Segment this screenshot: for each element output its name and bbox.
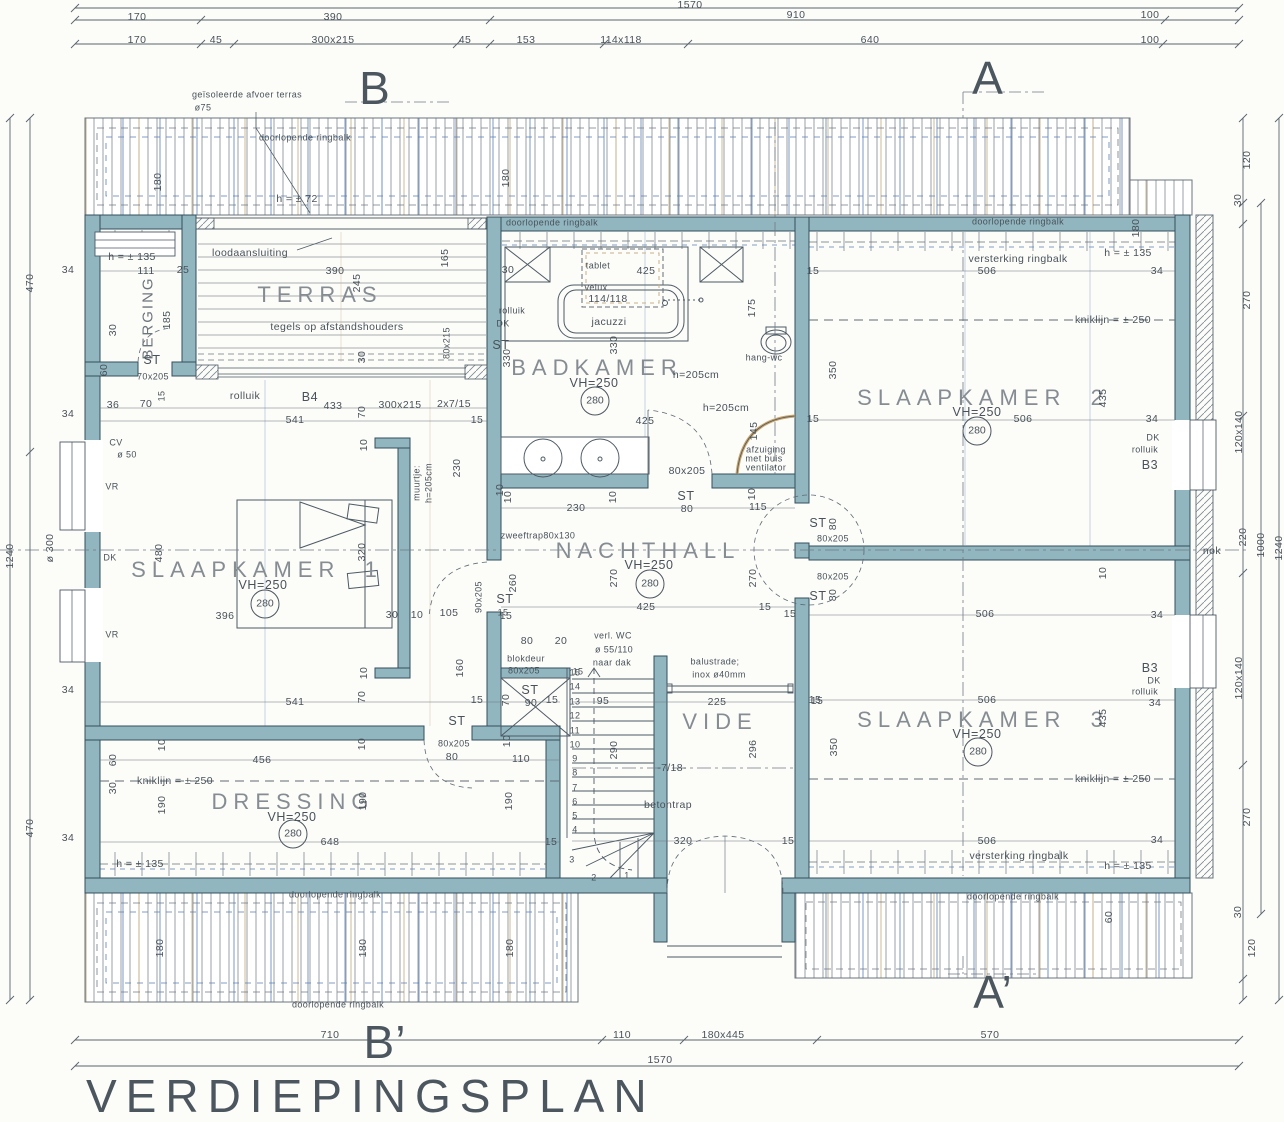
plan-annotation: 1570 (648, 1055, 673, 1066)
plan-annotation: -7/18- (657, 763, 687, 774)
plan-annotation: 120x140 (1234, 410, 1245, 453)
level-badge: 280 (251, 590, 280, 619)
level-badge: 280 (963, 417, 992, 446)
plan-annotation: geïsoleerde afvoer terras (192, 91, 302, 100)
plan-annotation: 34 (62, 265, 74, 276)
plan-annotation: 190 (157, 796, 168, 815)
plan-annotation: ø 55/110 (595, 646, 633, 655)
floor-plan: VERDIEPINGSPLAN 157017039091010017045300… (0, 0, 1284, 1122)
plan-annotation: velux (584, 284, 607, 293)
plan-annotation: 180 (153, 173, 164, 192)
plan-annotation: 70x205 (137, 373, 169, 382)
plan-annotation: 506 (976, 609, 995, 620)
plan-annotation: 506 (978, 695, 997, 706)
plan-annotation: 220 (1238, 528, 1249, 547)
plan-annotation: 90 (525, 698, 537, 709)
plan-annotation: 100 (1141, 35, 1160, 46)
plan-annotation: 36 (107, 400, 119, 411)
plan-annotation: 175 (747, 299, 758, 318)
plan-annotation: 15 (784, 609, 796, 620)
plan-annotation: 110 (512, 754, 530, 765)
plan-annotation: 10 (359, 667, 370, 679)
plan-annotation: 10 (357, 738, 368, 750)
plan-annotation: loodaansluiting (212, 248, 288, 259)
plan-annotation: h = ± 135 (108, 252, 156, 263)
plan-annotation: tablet (586, 262, 610, 271)
annotation-layer: 157017039091010017045300x21545153114x118… (0, 0, 1284, 1122)
plan-annotation: 160 (455, 659, 466, 678)
plan-annotation: CV (109, 439, 122, 448)
plan-annotation: 30 (108, 324, 119, 336)
plan-annotation: 115 (749, 502, 767, 513)
plan-annotation: 10 (1098, 567, 1109, 579)
plan-annotation: 230 (452, 459, 463, 478)
plan-annotation: blokdeur (507, 655, 545, 664)
plan-annotation: 80 (446, 752, 458, 763)
plan-annotation: 390 (326, 266, 345, 277)
plan-annotation: 570 (981, 1030, 1000, 1041)
plan-annotation: 180 (155, 939, 166, 958)
plan-annotation: 34 (1151, 266, 1163, 277)
plan-annotation: 90x205 (475, 581, 484, 613)
plan-annotation: 114x118 (600, 35, 642, 46)
plan-annotation: versterking ringbalk (968, 254, 1067, 265)
plan-annotation: hang-wc (746, 354, 783, 363)
plan-annotation: 8 (572, 769, 577, 778)
plan-annotation: 10 (359, 439, 370, 451)
plan-annotation: 15 (782, 836, 794, 847)
plan-annotation: doorlopende ringbalk (292, 1001, 384, 1010)
plan-annotation: 456 (253, 755, 272, 766)
plan-annotation: 541 (286, 415, 305, 426)
plan-annotation: 170 (128, 12, 147, 23)
plan-annotation: 80x205 (669, 466, 706, 477)
plan-annotation: 15 (759, 602, 771, 613)
plan-annotation: 180 (358, 939, 369, 958)
plan-annotation: 396 (216, 611, 235, 622)
plan-annotation: 470 (25, 819, 36, 838)
plan-annotation: 320 (674, 836, 693, 847)
plan-annotation: 15 (471, 695, 483, 706)
plan-annotation: jacuzzi (592, 317, 627, 328)
plan-annotation: 15 (158, 391, 167, 402)
plan-annotation: 30 (357, 351, 368, 363)
plan-annotation: 80x215 (443, 327, 452, 359)
plan-annotation: ø75 (195, 104, 212, 113)
plan-annotation: 506 (978, 266, 997, 277)
level-badge: 280 (636, 570, 665, 599)
plan-annotation: B4 (302, 391, 319, 404)
section-marker: B (359, 65, 391, 111)
plan-annotation: naar dak (593, 659, 631, 668)
plan-annotation: 350 (828, 361, 839, 380)
plan-annotation: tegels op afstandshouders (270, 322, 403, 333)
plan-annotation: 34 (62, 409, 74, 420)
plan-annotation: 12 (570, 712, 581, 721)
plan-annotation: doorlopende ringbalk (289, 891, 381, 900)
level-badge: 280 (279, 820, 308, 849)
plan-annotation: 170 (128, 35, 147, 46)
plan-annotation: 7 (572, 784, 577, 793)
plan-annotation: 100 (1141, 10, 1160, 21)
plan-annotation: 70 (357, 691, 368, 703)
plan-annotation: ST (809, 590, 826, 603)
plan-annotation: DK (103, 554, 116, 563)
plan-annotation: 470 (25, 274, 36, 293)
plan-annotation: 2 (591, 874, 596, 883)
plan-annotation: muurtje: (413, 465, 422, 501)
plan-annotation: kniklijn = ± 250 (137, 776, 213, 787)
plan-annotation: h=205cm (425, 463, 434, 503)
plan-annotation: 1000 (1256, 533, 1267, 558)
plan-annotation: 80x205 (438, 740, 470, 749)
plan-annotation: 648 (321, 837, 340, 848)
plan-annotation: 1240 (1274, 536, 1284, 561)
plan-annotation: 15 (807, 266, 819, 277)
plan-annotation: 11 (570, 727, 580, 736)
plan-annotation: 30 (502, 265, 514, 276)
plan-annotation: 6 (572, 798, 577, 807)
plan-annotation: 330 (609, 336, 620, 355)
plan-annotation: 30 (386, 610, 398, 621)
plan-annotation: 34 (62, 685, 74, 696)
plan-annotation: 435 (1098, 709, 1109, 728)
plan-annotation: ø 50 (117, 451, 137, 460)
plan-annotation: 910 (787, 10, 806, 21)
plan-annotation: 320 (357, 543, 368, 562)
plan-annotation: 80 (521, 636, 533, 647)
plan-annotation: 425 (637, 602, 656, 613)
plan-annotation: 10 (502, 735, 513, 747)
plan-annotation: 30 (1233, 906, 1244, 918)
plan-annotation: rolluik (499, 307, 525, 316)
plan-annotation: 30 (108, 782, 119, 794)
plan-annotation: 300x215 (311, 35, 354, 46)
section-marker: A (972, 55, 1004, 101)
plan-annotation: 9 (572, 755, 577, 764)
plan-annotation: h = ± 135 (116, 859, 164, 870)
plan-annotation: 14 (570, 683, 581, 692)
plan-annotation: 506 (978, 836, 997, 847)
plan-annotation: doorlopende ringbalk (506, 219, 598, 228)
plan-annotation: 13 (570, 698, 581, 707)
plan-annotation: nok (1203, 546, 1221, 557)
plan-annotation: 15 (545, 837, 557, 848)
plan-annotation: 60 (99, 364, 110, 376)
plan-annotation: 1 (624, 872, 629, 881)
plan-annotation: h = ± 135 (1104, 861, 1152, 872)
plan-annotation: doorlopende ringbalk (972, 218, 1064, 227)
plan-annotation: 20 (555, 636, 567, 647)
plan-annotation: rolluik (230, 391, 260, 402)
plan-annotation: h=205cm (673, 370, 719, 381)
plan-annotation: ST (448, 715, 465, 728)
plan-annotation: 541 (286, 697, 305, 708)
plan-annotation: 15 (570, 669, 581, 678)
plan-annotation: DK (1146, 434, 1159, 443)
plan-annotation: 153 (517, 35, 536, 46)
plan-annotation: 180 (1131, 219, 1142, 238)
plan-annotation: 180 (505, 939, 516, 958)
plan-annotation: ST (677, 490, 694, 503)
plan-annotation: 710 (321, 1030, 340, 1041)
plan-annotation: 10 (570, 741, 581, 750)
plan-annotation: 10 (608, 491, 619, 503)
plan-annotation: 5 (572, 812, 577, 821)
plan-annotation: 270 (1242, 808, 1253, 827)
plan-annotation: versterking ringbalk (969, 851, 1068, 862)
plan-annotation: 25 (177, 265, 189, 276)
plan-annotation: 105 (440, 608, 459, 619)
plan-annotation: BERGING (141, 276, 156, 359)
plan-annotation: 111 (137, 266, 154, 277)
section-marker: B’ (364, 1019, 407, 1065)
plan-annotation: 34 (1149, 698, 1161, 709)
plan-annotation: 114/118 (588, 294, 627, 305)
plan-annotation: 296 (748, 740, 759, 759)
plan-annotation: 80 (681, 504, 693, 515)
plan-annotation: B3 (1142, 459, 1159, 472)
plan-annotation: 95 (597, 696, 609, 707)
plan-annotation: 3 (569, 856, 574, 865)
plan-annotation: 34 (1151, 835, 1163, 846)
plan-annotation: 120x140 (1234, 656, 1245, 699)
plan-annotation: 70 (501, 694, 512, 706)
plan-annotation: 80x205 (817, 535, 849, 544)
plan-annotation: 70 (357, 406, 368, 418)
plan-annotation: 80 (828, 589, 839, 601)
plan-annotation: 425 (636, 416, 655, 427)
plan-annotation: 506 (1014, 414, 1033, 425)
plan-annotation: 80 (828, 518, 839, 530)
plan-annotation: doorlopende ringbalk (259, 134, 351, 143)
plan-annotation: 45 (210, 35, 222, 46)
plan-annotation: 15 (807, 414, 819, 425)
plan-annotation: 80x205 (508, 667, 540, 676)
plan-annotation: 10 (157, 739, 168, 751)
plan-annotation: 70 (140, 399, 152, 410)
plan-annotation: 433 (324, 401, 343, 412)
plan-annotation: doorlopende ringbalk (967, 893, 1059, 902)
plan-annotation: h = ± 72 (276, 194, 317, 205)
plan-annotation: 190 (504, 792, 515, 811)
plan-annotation: DK (496, 320, 509, 329)
plan-annotation: 45 (459, 35, 471, 46)
plan-annotation: 390 (324, 12, 343, 23)
plan-annotation: kniklijn = ± 250 (1075, 774, 1151, 785)
plan-annotation: 290 (609, 741, 620, 760)
plan-annotation: 120 (1242, 151, 1253, 170)
plan-annotation: 15 (809, 695, 821, 706)
plan-annotation: 120 (1247, 939, 1258, 958)
plan-annotation: 300x215 (378, 400, 421, 411)
plan-annotation: B3 (1142, 662, 1159, 675)
plan-annotation: 4 (572, 826, 577, 835)
level-badge: 280 (964, 738, 993, 767)
plan-annotation: ST (143, 354, 160, 367)
section-marker: A’ (973, 969, 1013, 1015)
plan-annotation: 260 (508, 574, 519, 593)
plan-annotation: kniklijn = ± 250 (1075, 315, 1151, 326)
plan-annotation: h = ± 135 (1104, 248, 1152, 259)
level-badge: 280 (581, 387, 610, 416)
plan-annotation: 225 (708, 697, 727, 708)
plan-annotation: 190 (358, 792, 369, 811)
plan-annotation: 180x445 (701, 1030, 744, 1041)
plan-annotation: inox ø40mm (692, 671, 746, 680)
plan-annotation: 10 (411, 610, 423, 621)
plan-annotation: 34 (1146, 414, 1158, 425)
room-label: TERRAS (257, 284, 382, 306)
room-label: VIDE (682, 711, 757, 733)
plan-annotation: 34 (62, 833, 74, 844)
plan-annotation: 60 (1104, 911, 1115, 923)
plan-annotation: ST (521, 684, 538, 697)
plan-annotation: 30 (1233, 194, 1244, 206)
plan-annotation: 1240 (5, 544, 16, 569)
plan-annotation: 15 (546, 695, 558, 706)
plan-annotation: 34 (1151, 610, 1163, 621)
plan-annotation: betontrap (644, 800, 692, 811)
plan-annotation: 270 (748, 569, 759, 588)
plan-annotation: 425 (637, 266, 656, 277)
plan-annotation: 15 (471, 415, 483, 426)
plan-annotation: 10 (503, 491, 514, 503)
plan-annotation: 165 (440, 249, 451, 268)
plan-annotation: 270 (1242, 291, 1253, 310)
plan-annotation: 270 (609, 569, 620, 588)
plan-annotation: balustrade; (691, 658, 740, 667)
plan-annotation: 435 (1098, 389, 1109, 408)
plan-annotation: 2x7/15 (437, 399, 471, 410)
plan-annotation: VR (105, 483, 118, 492)
plan-annotation: rolluik (1132, 688, 1158, 697)
plan-annotation: 60 (108, 754, 119, 766)
plan-annotation: 185 (162, 311, 173, 330)
plan-annotation: 640 (861, 35, 880, 46)
plan-annotation: 350 (829, 738, 840, 757)
plan-annotation: ST (809, 517, 826, 530)
plan-annotation: verl. WC (594, 632, 632, 641)
plan-annotation: 230 (567, 503, 586, 514)
plan-annotation: 80x205 (817, 573, 849, 582)
plan-annotation: 180 (501, 169, 512, 188)
plan-annotation: h=205cm (703, 403, 749, 414)
plan-annotation: 1570 (678, 0, 703, 10)
plan-annotation: DK (1147, 677, 1160, 686)
plan-annotation: 10 (747, 488, 758, 500)
plan-annotation: 15 (498, 609, 509, 618)
plan-annotation: ST (496, 593, 513, 606)
plan-annotation: rolluik (1132, 446, 1158, 455)
plan-annotation: ø 300 (45, 534, 56, 563)
plan-annotation: ventilator (746, 464, 787, 473)
plan-annotation: 110 (613, 1030, 631, 1041)
plan-annotation: VR (105, 631, 118, 640)
plan-annotation: 145 (749, 422, 760, 441)
